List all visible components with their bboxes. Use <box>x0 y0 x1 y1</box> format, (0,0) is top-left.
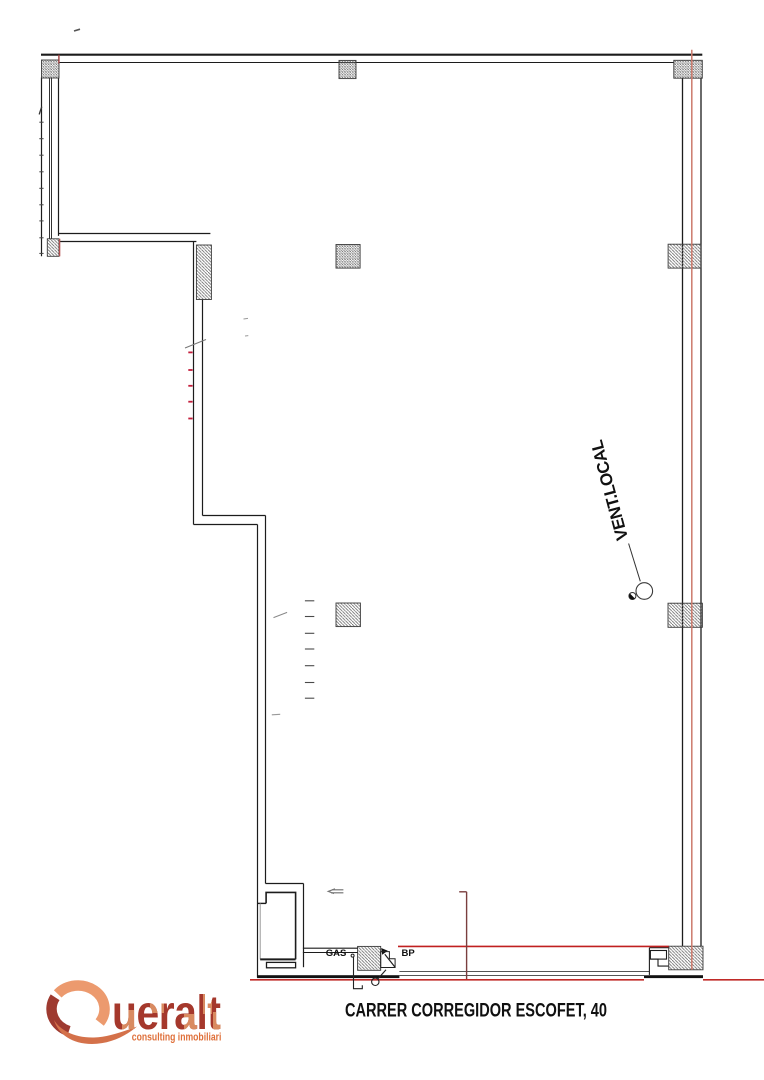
svg-text:consulting inmobiliari: consulting inmobiliari <box>132 1032 222 1044</box>
svg-text:BP: BP <box>402 948 416 959</box>
svg-text:CARRER CORREGIDOR ESCOFET, 40: CARRER CORREGIDOR ESCOFET, 40 <box>345 1000 607 1022</box>
svg-text:VENT.LOCAL: VENT.LOCAL <box>587 438 632 542</box>
svg-text:GAS: GAS <box>326 948 347 959</box>
